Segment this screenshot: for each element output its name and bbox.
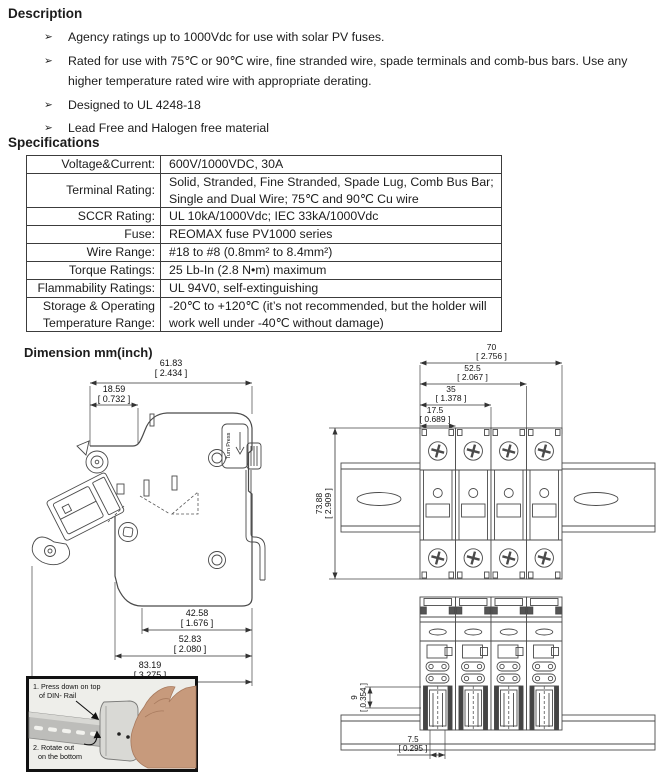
table-row: Terminal Rating: Solid, Stranded, Fine S… <box>27 174 502 208</box>
dim-front-p2-in: [ 1.378 ] <box>436 393 467 403</box>
table-row: SCCR Rating: UL 10kA/1000Vdc; IEC 33kA/1… <box>27 208 502 226</box>
dim-bottom-depth-in: [ 0.354 ] <box>359 683 368 712</box>
photo-step1-line2: of DIN- Rail <box>39 691 77 700</box>
bottom-view-drawing: 9 [ 0.354 ] 7.5 [ 0.295 ] <box>315 583 659 773</box>
spec-label: Flammability Ratings: <box>27 280 161 298</box>
spec-label: Fuse: <box>27 226 161 244</box>
dim-front-h-in: [ 2.909 ] <box>323 488 333 519</box>
spec-label: Torque Ratings: <box>27 262 161 280</box>
specifications-table: Voltage&Current: 600V/1000VDC, 30A Termi… <box>26 155 502 332</box>
table-row: Fuse: REOMAX fuse PV1000 series <box>27 226 502 244</box>
arrow-bullet-icon: ➢ <box>44 27 68 48</box>
dim-bottom-offset-mm: 7.5 <box>407 735 419 744</box>
spec-value: -20℃ to +120℃ (it’s not recommended, but… <box>161 298 502 332</box>
spec-label: Voltage&Current: <box>27 156 161 174</box>
spec-label: Wire Range: <box>27 244 161 262</box>
dim-side-total-in: [ 2.434 ] <box>155 368 188 378</box>
dim-bottom-offset-in: [ 0.295 ] <box>399 744 428 753</box>
table-row: Storage & Operating Temperature Range: -… <box>27 298 502 332</box>
spec-value: UL 10kA/1000Vdc; IEC 33kA/1000Vdc <box>161 208 502 226</box>
spec-label: Terminal Rating: <box>27 174 161 208</box>
list-item: ➢ Designed to UL 4248-18 <box>44 95 640 116</box>
description-bullet-list: ➢ Agency ratings up to 1000Vdc for use w… <box>44 27 640 142</box>
photo-step2-line2: on the bottom <box>38 752 82 761</box>
bullet-text: Rated for use with 75℃ or 90℃ wire, fine… <box>68 51 640 92</box>
dim-bottom-depth-mm: 9 <box>350 695 359 700</box>
turn-press-label: Turn Press <box>226 432 232 459</box>
list-item: ➢ Rated for use with 75℃ or 90℃ wire, fi… <box>44 51 640 92</box>
dim-side-cover-mm: 18.59 <box>103 384 126 394</box>
arrow-bullet-icon: ➢ <box>44 95 68 116</box>
din-rail-removal-photo: 1. Press down on top of DIN- Rail 2. Rot… <box>26 676 198 772</box>
description-heading: Description <box>8 6 82 21</box>
dim-front-p1-in: [ 0.689 ] <box>420 414 451 424</box>
dim-front-p3-in: [ 2.067 ] <box>457 372 488 382</box>
table-row: Wire Range: #18 to #8 (0.8mm² to 8.4mm²) <box>27 244 502 262</box>
spec-value: REOMAX fuse PV1000 series <box>161 226 502 244</box>
table-row: Flammability Ratings: UL 94V0, self-exti… <box>27 280 502 298</box>
dim-side-body-in: [ 2.080 ] <box>174 644 207 654</box>
specifications-heading: Specifications <box>8 135 100 150</box>
fuse-holder-modules-top <box>420 597 562 730</box>
dim-side-foot-in: [ 1.676 ] <box>181 618 214 628</box>
photo-step1-line1: 1. Press down on top <box>33 682 101 691</box>
dim-side-overall-mm: 83.19 <box>139 660 162 670</box>
list-item: ➢ Lead Free and Halogen free material <box>44 118 640 139</box>
spec-value: 25 Lb-In (2.8 N•m) maximum <box>161 262 502 280</box>
table-row: Voltage&Current: 600V/1000VDC, 30A <box>27 156 502 174</box>
list-item: ➢ Agency ratings up to 1000Vdc for use w… <box>44 27 640 48</box>
spec-value: Solid, Stranded, Fine Stranded, Spade Lu… <box>161 174 502 208</box>
datasheet-page: Description ➢ Agency ratings up to 1000V… <box>0 0 659 773</box>
table-row: Torque Ratings: 25 Lb-In (2.8 N•m) maxim… <box>27 262 502 280</box>
dim-side-body-mm: 52.83 <box>179 634 202 644</box>
arrow-bullet-icon: ➢ <box>44 51 68 92</box>
spec-value: UL 94V0, self-extinguishing <box>161 280 502 298</box>
spec-label: SCCR Rating: <box>27 208 161 226</box>
dim-side-cover-in: [ 0.732 ] <box>98 394 131 404</box>
side-view-drawing: 61.83 [ 2.434 ] 18.59 [ 0.732 ] Turn Pre… <box>20 356 312 688</box>
dim-front-p4-in: [ 2.756 ] <box>476 351 507 361</box>
dim-side-foot-mm: 42.58 <box>186 608 209 618</box>
spec-label: Storage & Operating Temperature Range: <box>27 298 161 332</box>
spec-value: 600V/1000VDC, 30A <box>161 156 502 174</box>
bullet-text: Agency ratings up to 1000Vdc for use wit… <box>68 27 384 48</box>
dim-side-total-mm: 61.83 <box>160 358 183 368</box>
front-view-drawing: 70 [ 2.756 ] 52.5 [ 2.067 ] 35 [ 1.378 ]… <box>315 342 659 584</box>
spec-value: #18 to #8 (0.8mm² to 8.4mm²) <box>161 244 502 262</box>
fuse-holder-modules-front <box>420 428 562 579</box>
photo-step2-line1: 2. Rotate out <box>33 743 74 752</box>
bullet-text: Designed to UL 4248-18 <box>68 95 201 116</box>
